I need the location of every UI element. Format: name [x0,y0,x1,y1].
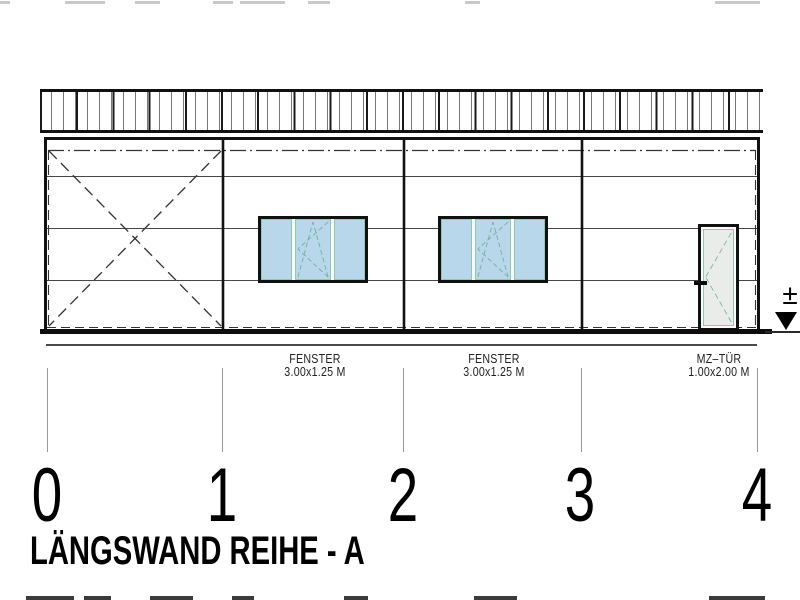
level-datum-triangle-icon [775,312,797,330]
footing-line [46,344,757,346]
ground-line-extension [765,331,800,333]
window-pane [514,219,545,280]
grid-tick-0 [47,368,48,452]
window-pane [334,219,365,280]
crop-artifact [308,1,330,4]
crop-artifact [150,596,193,600]
window-pane-tilt-turn [475,219,511,280]
window-pane [261,219,292,280]
window-pane-tilt-turn [295,219,331,280]
label-fenster-2-size: 3.00x1.25 M [463,365,524,378]
crop-artifact [474,596,517,600]
door-mz-tuer [698,224,739,331]
tilt-turn-opening-icon [476,220,510,279]
window-pane [441,219,472,280]
label-mz-tuer-name: MZ–TÜR [688,352,749,365]
tilt-turn-opening-icon [296,220,330,279]
label-fenster-2: FENSTER 3.00x1.25 M [463,352,524,379]
siding-joint-line [47,280,757,281]
door-leaf [703,229,734,326]
grid-number-2: 2 [388,458,418,534]
label-mz-tuer-size: 1.00x2.00 M [688,365,749,378]
window-fenster-2 [438,216,548,283]
grid-tick-3 [581,368,582,452]
label-fenster-1-size: 3.00x1.25 M [284,365,345,378]
grid-number-4: 4 [742,458,772,534]
siding-joint-line [47,228,757,229]
crop-artifact [344,596,368,600]
crop-artifact [135,1,160,4]
wall-outline [44,137,760,331]
grid-tick-2 [403,368,404,452]
label-fenster-1: FENSTER 3.00x1.25 M [284,352,345,379]
level-plus-minus-symbol: ± [779,281,800,309]
elevation-drawing-canvas: { "drawing": { "title": "LÄNGSWAND REIHE… [0,0,800,600]
label-fenster-1-name: FENSTER [284,352,345,365]
crop-artifact [84,596,111,600]
drawing-title: LÄNGSWAND REIHE - A [30,531,365,571]
siding-joint-line [47,176,757,177]
crop-artifact [65,1,105,4]
crop-artifact [715,1,760,4]
grid-tick-1 [222,368,223,452]
crop-artifact [709,596,765,600]
grid-tick-4 [757,368,758,452]
door-swing-icon [704,230,733,325]
window-fenster-1 [258,216,368,283]
door-handle-icon [694,281,707,285]
crop-artifact [213,1,233,4]
crop-artifact [232,596,254,600]
grid-number-1: 1 [207,458,237,534]
grid-number-0: 0 [32,458,62,534]
crop-artifact [0,1,10,4]
grid-number-3: 3 [565,458,595,534]
crop-artifact [465,1,480,4]
label-mz-tuer: MZ–TÜR 1.00x2.00 M [688,352,749,379]
crop-artifact [240,1,285,4]
roof-cladding-band [40,89,763,133]
crop-artifact [26,596,74,600]
ground-line [40,329,772,334]
label-fenster-2-name: FENSTER [463,352,524,365]
